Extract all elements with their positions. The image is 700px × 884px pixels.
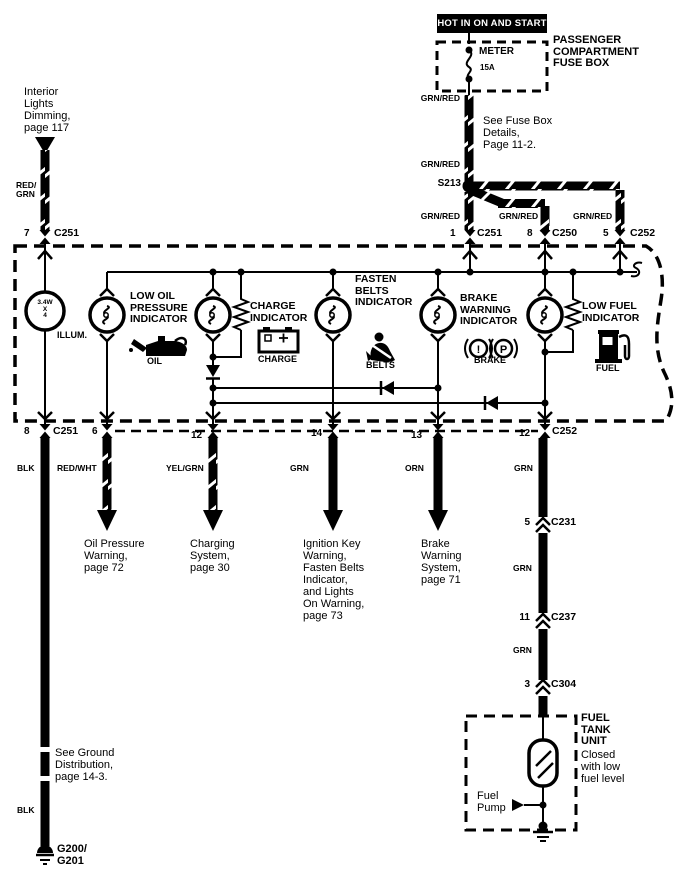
inline-connector-c304 [536,680,550,694]
oil-indicator-bulb [90,289,124,426]
ground-id-label: G200/ G201 [57,844,87,867]
pin-5-number-top: 5 [603,228,609,240]
fuel-tank-unit-title: FUEL TANK UNIT [581,713,611,748]
grn-fuel-wire [539,438,548,716]
wire-label-grn-belts: GRN [290,464,309,473]
diode-link-fuel [213,396,545,410]
wiring-diagram-page: ! P HOT IN ON AND START PASSENGER COMPAR… [0,0,700,884]
brake-icon-label: BRAKE [474,356,506,365]
splice-label-s213: S213 [425,178,461,190]
wire-label-orn: ORN [405,464,424,473]
blk-ground-wire [41,438,50,846]
fuel-pump-icon [595,330,629,363]
ground-symbol-tank [533,822,553,842]
seatbelt-icon [366,333,395,363]
brake-indicator-title: BRAKE WARNING INDICATOR [460,293,517,328]
connector-label-c251-left: C251 [54,228,79,240]
power-banner: HOT IN ON AND START [437,14,547,33]
fuel-tank-unit-subtitle: Closed with low fuel level [581,749,624,785]
connector-pin-7-c251 [40,230,51,244]
connector-label-c250: C250 [552,228,577,240]
connector-label-c252-bottom: C252 [552,426,577,438]
illum-label: ILLUM. [57,331,87,340]
wire-label-redgrn: RED/ GRN [16,181,36,199]
wire-label-grn-fuel: GRN [514,464,533,473]
dest-ignition-key-warning: Ignition Key Warning, Fasten Belts Indic… [303,538,364,622]
belts-indicator-bulb [316,289,350,426]
illum-bulb-rating: 3.4W X 4 [27,300,63,320]
fuel-icon-label: FUEL [596,364,620,373]
orn-wire [428,438,448,531]
belts-icon-label: BELTS [366,361,395,370]
connector-label-c251-bottom: C251 [53,426,78,438]
s213-branch-wires [465,182,625,233]
meter-fuse-symbol [466,47,473,96]
pin-12-number-charge: 12 [191,430,202,442]
fuel-pump-branch [512,799,547,811]
charge-icon-label: CHARGE [258,355,297,364]
wire-label-branch3: GRN/RED [573,212,612,221]
wire-label-grn-seg1: GRN [513,564,532,573]
interior-lights-ref: Interior Lights Dimming, page 117 [24,86,70,134]
fuse-rating: 15A [480,62,495,74]
ground-distribution-note: See Ground Distribution, page 14-3. [55,747,114,783]
pin-11-c237-number: 11 [510,612,530,624]
pin-8-number-bottom: 8 [24,426,30,438]
wire-label-branch1: GRN/RED [412,212,460,221]
pin-14-number: 14 [311,428,322,440]
pin-6-number: 6 [92,426,98,438]
wire-label-grn-seg2: GRN [513,646,532,655]
wire-label-blk-lower: BLK [17,806,34,815]
wire-label-branch2: GRN/RED [499,212,538,221]
up-arrows-to-connectors [38,251,627,259]
connector-pin-5-c252 [615,230,626,244]
connector-label-c304: C304 [551,679,576,691]
connector-label-c231: C231 [551,517,576,529]
pin-3-c304-number: 3 [516,679,530,691]
oil-icon-label: OIL [147,357,162,366]
fuse-box-name: PASSENGER COMPARTMENT FUSE BOX [553,35,639,70]
pin-5-c231-number: 5 [516,517,530,529]
redwht-wire [97,438,117,531]
connector-label-c237: C237 [551,612,576,624]
connector-label-c251-top: C251 [477,228,502,240]
dest-brake-warning-system: Brake Warning System, page 71 [421,538,462,586]
connector-pin-8-c250 [540,230,551,244]
pin-8-number-top: 8 [527,228,533,240]
oil-can-icon [129,336,187,356]
diode-link-brake [213,381,438,395]
charge-indicator-title: CHARGE INDICATOR [250,301,307,324]
brake-indicator-bulb [421,289,455,426]
wire-label-yelgrn: YEL/GRN [166,464,204,473]
pin-1-number: 1 [450,228,456,240]
dest-oil-pressure-warning: Oil Pressure Warning, page 72 [84,538,145,574]
yelgrn-wire [203,438,223,531]
fuse-box-note: See Fuse Box Details, Page 11-2. [483,115,552,151]
cluster-bus-line [45,243,642,296]
down-arrows-to-connectors [38,412,552,419]
fuel-indicator-bulb [528,289,562,426]
inline-connector-c231 [536,518,550,532]
pin-12-number-fuel: 12 [519,428,530,440]
wire-label-redwht: RED/WHT [57,464,97,473]
grn-belts-wire [323,438,343,531]
pin-13-number: 13 [411,430,422,442]
oil-indicator-title: LOW OIL PRESSURE INDICATOR [130,291,188,326]
grn-red-feed-wire [465,95,474,230]
fuel-pump-label: Fuel Pump [477,790,506,814]
connector-pin-1-c251 [465,230,476,244]
ground-symbol-g200 [36,845,54,864]
wire-label-grnred-lower: GRN/RED [412,160,460,169]
dest-charging-system: Charging System, page 30 [190,538,235,574]
belts-indicator-title: FASTEN BELTS INDICATOR [355,274,412,309]
fuel-indicator-title: LOW FUEL INDICATOR [582,301,639,324]
wire-label-grnred-upper: GRN/RED [412,94,460,103]
fuse-name: METER [479,46,514,58]
connector-label-c252-top: C252 [630,228,655,240]
pin-7-number: 7 [24,228,30,240]
red-grn-wire [41,150,50,230]
battery-icon [259,327,298,352]
inline-connector-c237 [536,614,550,628]
wire-label-blk-upper: BLK [17,464,34,473]
charge-indicator-bulb [196,289,230,341]
